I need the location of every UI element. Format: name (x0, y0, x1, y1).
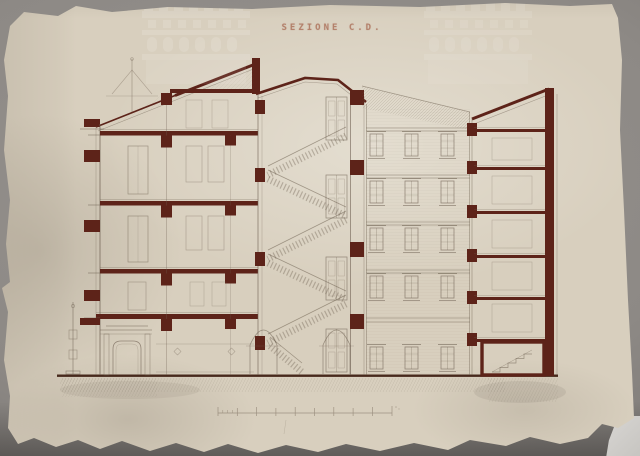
balcony-cut (84, 150, 100, 162)
photo-background: SEZIONE C.D. (0, 0, 640, 456)
section-drawing (0, 0, 640, 456)
facade-ornament (66, 302, 80, 374)
scale-bar (218, 406, 400, 434)
basement-section (482, 342, 544, 375)
drawing-sheet: SEZIONE C.D. (0, 0, 640, 456)
rear-wing-section (467, 88, 557, 376)
stair-flights (268, 127, 346, 372)
staircase-section (246, 78, 366, 375)
castle-watermark-icon (424, 2, 532, 84)
castle-watermark-icon (142, 2, 250, 84)
entrance-portal (100, 326, 152, 375)
ground-line (57, 375, 566, 404)
front-building-section (66, 58, 260, 375)
drawing-title: SEZIONE C.D. (268, 23, 396, 33)
courtyard-elevation (362, 86, 470, 375)
